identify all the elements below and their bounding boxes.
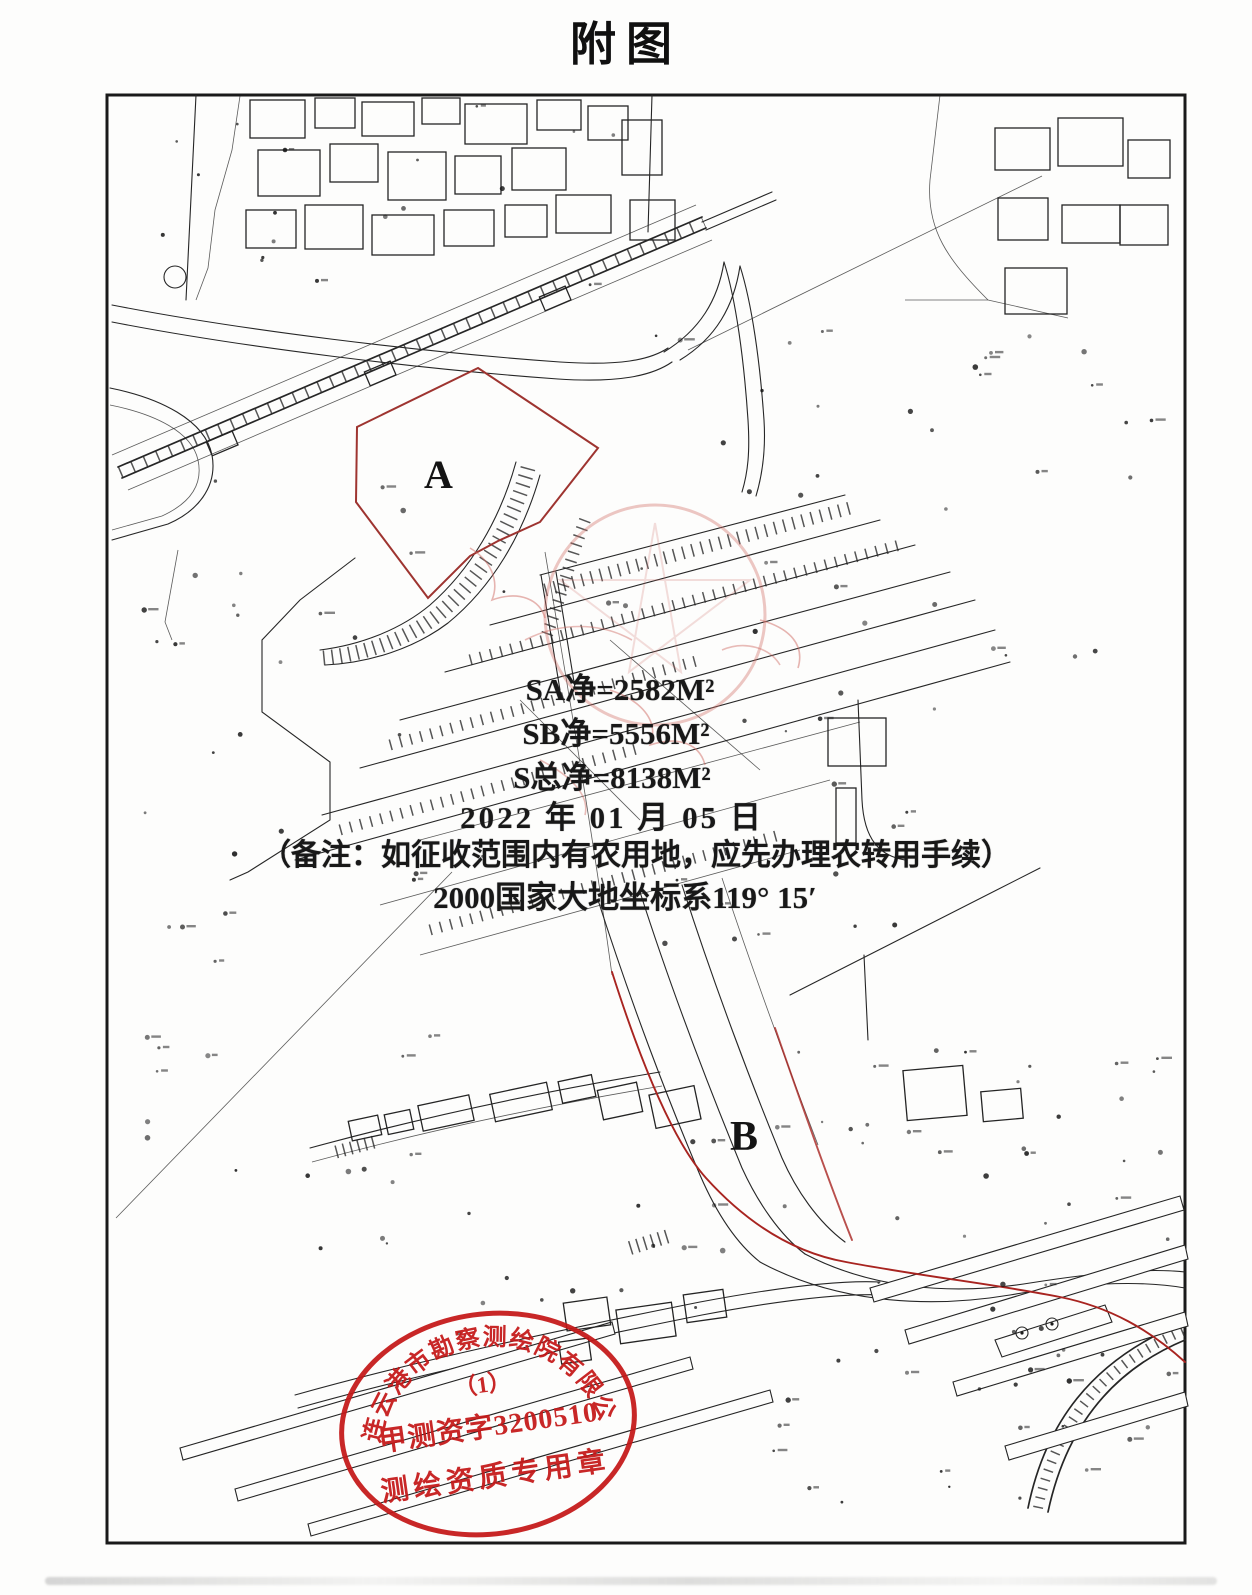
- annotation-coordinate-system: 2000国家大地坐标系119° 15′: [433, 882, 817, 915]
- route-line-red: [612, 972, 1185, 1362]
- annotation-area-b: SB净=5556M²: [522, 718, 709, 751]
- annotation-area-a: SA净=2582M²: [526, 674, 715, 707]
- scanned-map-page: 附图: [0, 0, 1252, 1595]
- parcel-b-label: B: [730, 1114, 758, 1160]
- scan-artifact: [45, 1577, 1217, 1585]
- annotation-area-total: S总净=8138M²: [513, 762, 710, 795]
- urban-blocks-layer: [164, 95, 1170, 318]
- survey-map-canvas: A B 连云港市勘察测绘院有限公司 （1） 甲测资字3200510 测绘资质专用…: [0, 0, 1252, 1595]
- parcel-a-label: A: [424, 452, 453, 497]
- annotation-date: 2022 年 01 月 05 日: [460, 802, 764, 835]
- parcel-a-outline: [356, 368, 598, 598]
- annotation-note: （备注：如征收范围内有农用地，应先办理农转用手续）: [261, 840, 1011, 872]
